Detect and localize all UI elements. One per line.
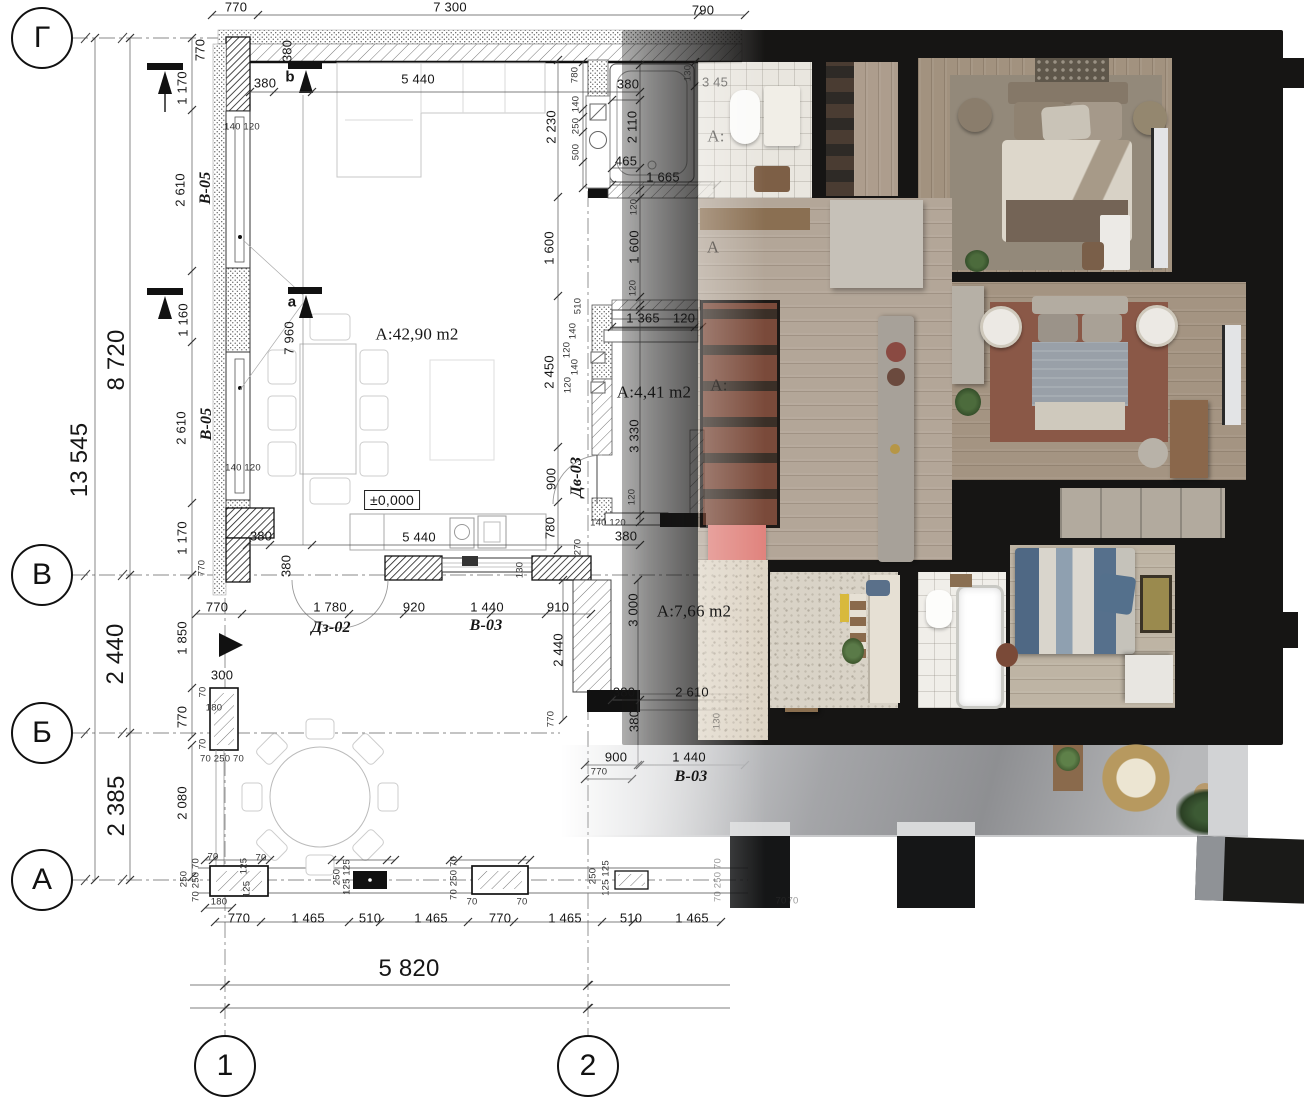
render-bedroom-1: [918, 58, 1172, 272]
nightstand: [1136, 305, 1178, 347]
window-band: [1151, 128, 1168, 268]
desk: [1125, 655, 1173, 703]
render-wardrobe-room: [826, 62, 898, 196]
basket: [996, 643, 1018, 667]
render-wall-tab: [1283, 58, 1304, 88]
blue-bag: [866, 580, 890, 596]
bed-pillows: [1038, 314, 1078, 342]
render-closet-band: [1060, 488, 1225, 538]
red-bench: [708, 525, 766, 560]
yellow-item: [840, 594, 849, 622]
planter: [730, 822, 790, 908]
deco-plate: [886, 342, 906, 362]
bench: [754, 166, 790, 192]
render-bathroom-2: [918, 572, 1006, 708]
render-pantry: [770, 572, 898, 708]
deco-plate: [887, 368, 905, 386]
art-frame: [1140, 575, 1172, 633]
planter: [1195, 836, 1304, 904]
render-wall-tab: [1240, 612, 1298, 648]
vanity: [764, 86, 800, 146]
entrance-arrow: [219, 633, 243, 657]
bookshelf: [700, 300, 780, 528]
plant: [1056, 747, 1080, 771]
bed-pillow-blue: [1096, 573, 1137, 616]
bed-pillow-accent: [1041, 104, 1091, 141]
terrace-edge-band: [1208, 745, 1248, 835]
plant: [955, 388, 981, 416]
desk-chair: [1082, 242, 1104, 270]
wardrobe: [952, 286, 984, 384]
plant: [842, 638, 864, 664]
nightstand: [980, 306, 1022, 348]
kitchen-counter: [700, 208, 810, 230]
desk: [1100, 215, 1130, 270]
planter: [897, 822, 975, 908]
bed-foot: [1035, 402, 1125, 430]
render-hallway: [698, 198, 952, 560]
floor-plan-screenshot: 7707 300790770380380b5 4401 170140 1202 …: [0, 0, 1304, 1108]
bed-headboard: [1008, 82, 1128, 104]
render-bedroom-2: [952, 282, 1246, 480]
render-bedroom-3: [1010, 545, 1175, 708]
bed-headboard: [1032, 296, 1128, 314]
desk-chair: [1138, 438, 1168, 468]
patterned-mat: [1035, 58, 1109, 82]
render-bathroom-1: [698, 62, 812, 198]
plant: [965, 250, 989, 272]
wardrobe: [826, 62, 854, 196]
window-band: [1222, 325, 1241, 425]
desk: [1170, 400, 1208, 478]
hanging-chair: [1100, 743, 1172, 813]
nightstand: [958, 98, 992, 132]
bed-duvet: [1032, 342, 1128, 406]
render-kitchen-floor: [698, 560, 768, 740]
toilet: [926, 590, 952, 628]
bed-pillows: [1082, 314, 1122, 342]
deco-gold: [890, 444, 900, 454]
toilet: [730, 90, 760, 144]
bathtub: [956, 585, 1004, 709]
island-cabinet: [830, 200, 923, 288]
render-panel: [560, 0, 1304, 1108]
mirror: [950, 574, 972, 587]
